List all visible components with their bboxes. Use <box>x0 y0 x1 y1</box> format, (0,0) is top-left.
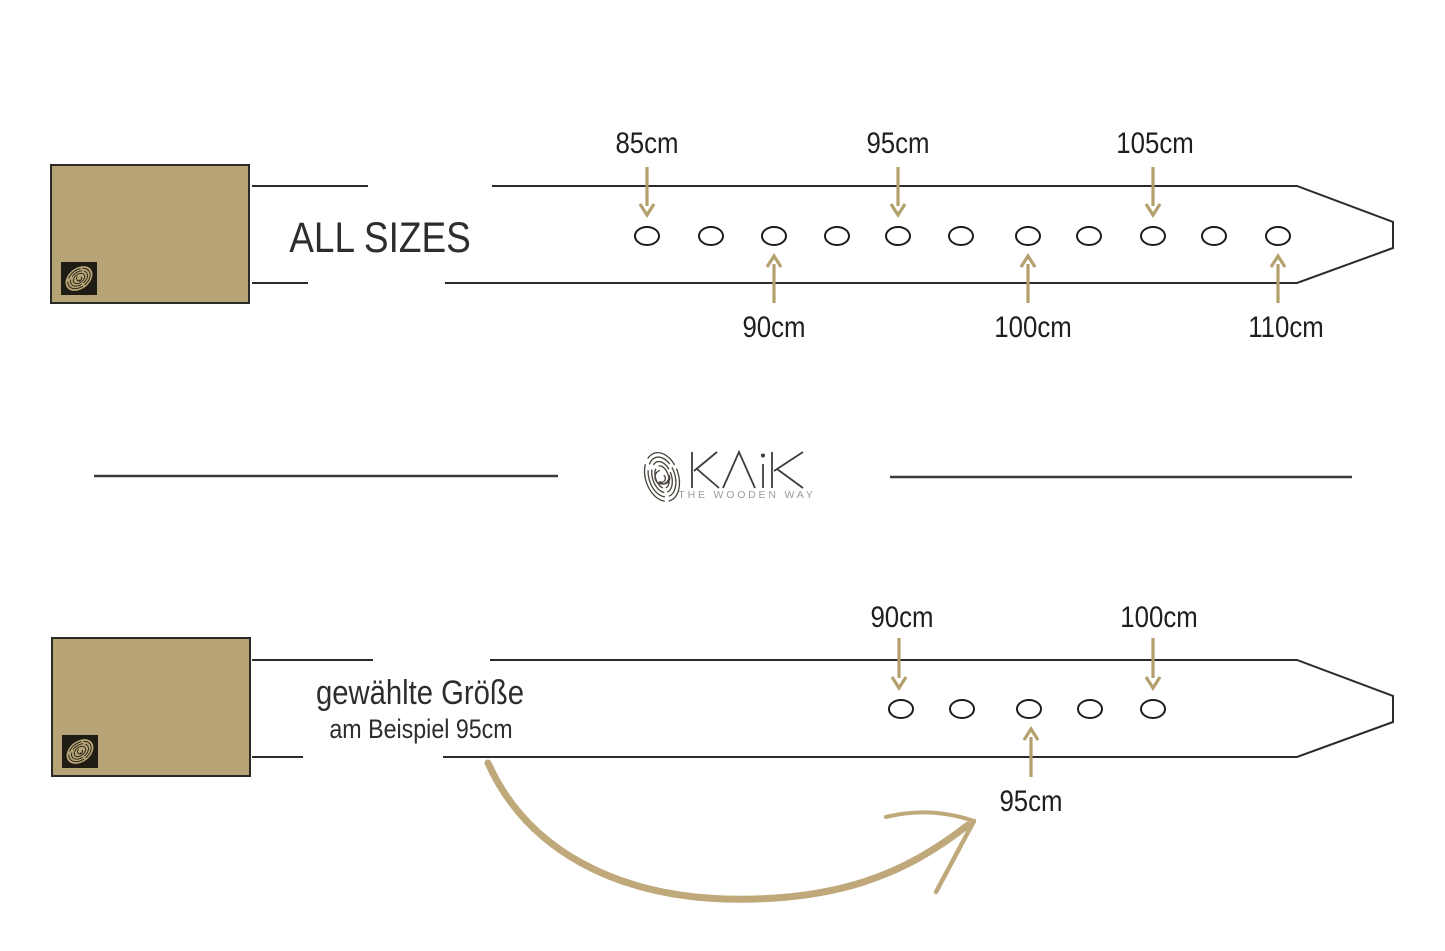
brand-logo-letters <box>692 452 803 488</box>
sketch-curved-arrow <box>488 763 974 899</box>
belt-hole <box>1077 227 1101 245</box>
belt-hole <box>889 700 913 718</box>
size-label-95cm: 95cm <box>861 127 934 161</box>
belt-size-guide: ALL SIZES 85cm 95cm 105cm 90cm 100cm 110… <box>0 0 1445 951</box>
top-belt-holes <box>635 227 1290 245</box>
belt-hole <box>1016 227 1040 245</box>
bottom-diagram-subtitle: am Beispiel 95cm <box>314 714 527 745</box>
belt-hole <box>1017 700 1041 718</box>
size-label-90cm: 90cm <box>737 311 810 345</box>
arrow-up-90cm <box>767 256 781 303</box>
belt-hole <box>950 700 974 718</box>
selected-size-label-90cm: 90cm <box>865 601 938 635</box>
belt-hole <box>635 227 659 245</box>
buckle-fingerprint-stamp <box>61 262 97 295</box>
arrow-up-95cm-selected <box>1024 729 1038 777</box>
arrow-up-110cm <box>1271 256 1285 303</box>
arrow-down-90cm-selected <box>892 638 906 688</box>
bottom-belt-holes <box>889 700 1165 718</box>
diagram-graphics <box>0 0 1445 951</box>
bottom-belt-buckle <box>51 637 251 777</box>
belt-hole <box>762 227 786 245</box>
belt-hole <box>1141 700 1165 718</box>
brand-tagline: THE WOODEN WAY <box>678 489 815 501</box>
belt-hole <box>886 227 910 245</box>
bottom-belt-outline <box>443 660 1393 757</box>
arrow-up-100cm <box>1021 256 1035 303</box>
buckle-fingerprint-stamp <box>62 735 98 768</box>
belt-hole <box>825 227 849 245</box>
belt-hole <box>949 227 973 245</box>
bottom-diagram-title: gewählte Größe <box>299 674 541 713</box>
top-diagram-title: ALL SIZES <box>274 214 485 263</box>
arrow-down-95cm <box>891 167 905 215</box>
selected-size-label-100cm: 100cm <box>1114 601 1204 635</box>
selected-size-label-95cm: 95cm <box>994 785 1067 819</box>
arrow-down-100cm-selected <box>1146 638 1160 688</box>
arrow-down-105cm <box>1146 167 1160 215</box>
arrow-down-85cm <box>640 167 654 215</box>
belt-hole <box>699 227 723 245</box>
top-belt-outline <box>445 186 1393 283</box>
belt-hole <box>1202 227 1226 245</box>
size-label-105cm: 105cm <box>1110 127 1200 161</box>
belt-hole <box>1078 700 1102 718</box>
size-label-110cm: 110cm <box>1242 311 1330 345</box>
top-belt-buckle <box>50 164 250 304</box>
size-label-100cm: 100cm <box>988 311 1078 345</box>
size-label-85cm: 85cm <box>610 127 683 161</box>
belt-hole <box>1141 227 1165 245</box>
belt-hole <box>1266 227 1290 245</box>
